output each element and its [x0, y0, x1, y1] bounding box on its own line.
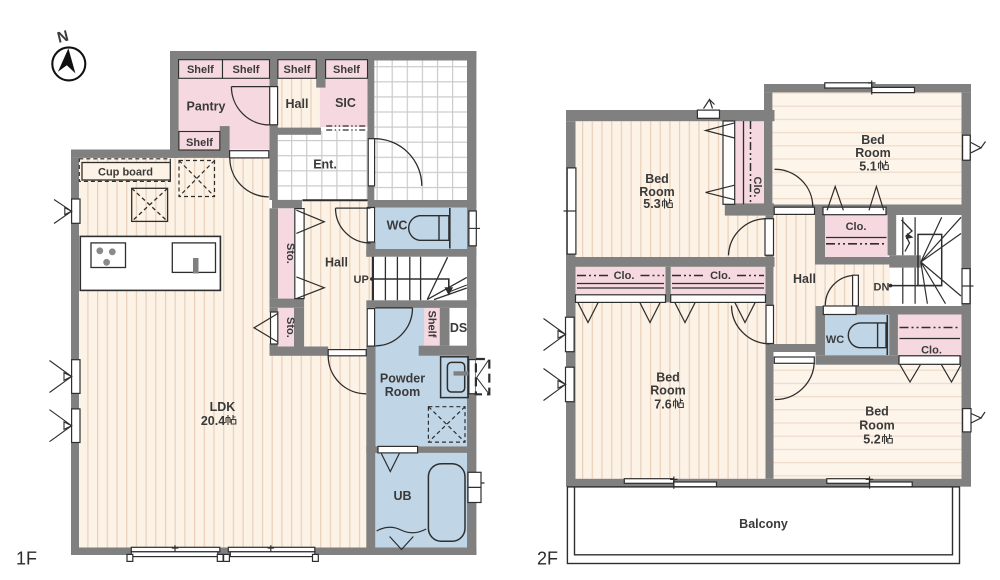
svg-text:2F: 2F	[537, 549, 558, 569]
svg-text:DS: DS	[450, 321, 467, 335]
svg-text:Clo.: Clo.	[846, 221, 867, 233]
svg-text:Sto.: Sto.	[284, 243, 296, 264]
svg-text:Ent.: Ent.	[313, 158, 337, 172]
svg-text:Clo.: Clo.	[710, 270, 731, 282]
svg-text:5.2: 5.2	[863, 433, 880, 447]
svg-text:Room: Room	[859, 419, 894, 433]
svg-text:LDK: LDK	[210, 400, 236, 414]
svg-text:1F: 1F	[16, 549, 37, 569]
svg-text:Bed: Bed	[861, 133, 885, 147]
svg-text:Shelf: Shelf	[284, 64, 311, 76]
svg-text:Shelf: Shelf	[233, 64, 260, 76]
svg-text:Clo.: Clo.	[751, 177, 763, 198]
svg-text:Clo.: Clo.	[614, 270, 635, 282]
svg-text:20.4: 20.4	[201, 414, 225, 428]
svg-text:DN: DN	[874, 282, 890, 294]
svg-text:WC: WC	[826, 334, 844, 346]
svg-text:Hall: Hall	[793, 272, 816, 286]
svg-text:Room: Room	[385, 385, 420, 399]
svg-text:UB: UB	[393, 489, 411, 503]
svg-text:Hall: Hall	[286, 97, 309, 111]
svg-text:Balcony: Balcony	[739, 517, 788, 531]
svg-text:WC: WC	[387, 219, 408, 233]
svg-text:SIC: SIC	[335, 96, 356, 110]
svg-text:Bed: Bed	[865, 405, 889, 419]
svg-text:Clo.: Clo.	[921, 345, 942, 357]
svg-text:Bed: Bed	[656, 371, 680, 385]
svg-text:Shelf: Shelf	[186, 137, 213, 149]
svg-text:Bed: Bed	[645, 172, 669, 186]
svg-text:Room: Room	[650, 384, 685, 398]
svg-text:UP: UP	[354, 274, 369, 286]
svg-text:5.3: 5.3	[643, 197, 660, 211]
svg-text:Shelf: Shelf	[187, 64, 214, 76]
svg-text:7.6: 7.6	[654, 398, 671, 412]
svg-text:Hall: Hall	[325, 256, 348, 270]
svg-text:Shelf: Shelf	[333, 64, 360, 76]
svg-text:Powder: Powder	[380, 372, 425, 386]
svg-text:Room: Room	[855, 146, 890, 160]
svg-text:5.1: 5.1	[859, 160, 876, 174]
svg-text:Pantry: Pantry	[187, 100, 226, 114]
svg-text:Sto.: Sto.	[284, 317, 296, 338]
svg-text:Cup board: Cup board	[98, 167, 153, 179]
svg-text:Shelf: Shelf	[426, 311, 438, 338]
